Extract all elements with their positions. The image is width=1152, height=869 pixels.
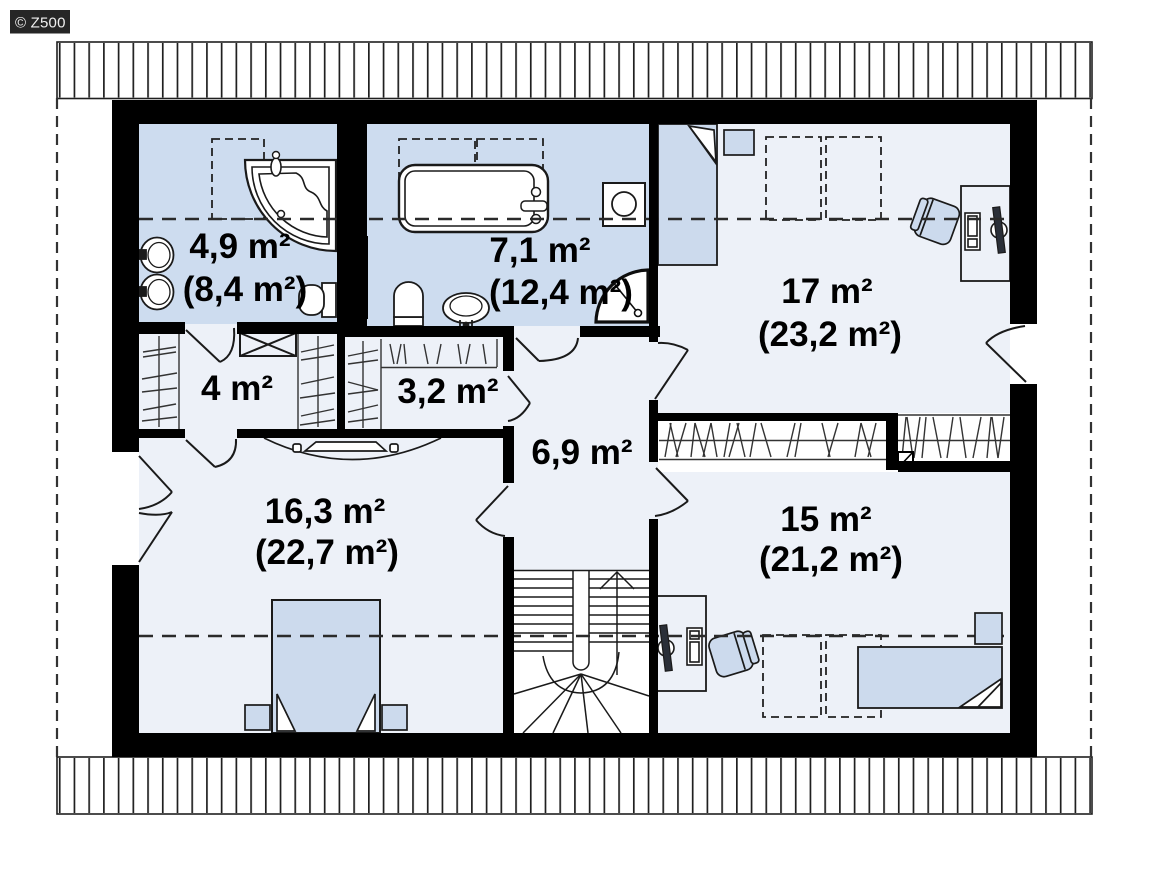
svg-text:6,9 m²: 6,9 m² [531,433,632,472]
svg-text:(8,4 m²): (8,4 m²) [183,270,307,309]
svg-text:(21,2 m²): (21,2 m²) [759,540,903,579]
svg-text:© Z500: © Z500 [15,15,66,32]
svg-text:(22,7 m²): (22,7 m²) [255,533,399,572]
svg-text:16,3 m²: 16,3 m² [265,492,386,531]
svg-text:7,1 m²: 7,1 m² [489,231,590,270]
svg-text:17 m²: 17 m² [781,272,872,311]
svg-text:(23,2 m²): (23,2 m²) [758,315,902,354]
svg-text:4,9 m²: 4,9 m² [189,227,290,266]
svg-text:4 m²: 4 m² [201,369,273,408]
svg-text:3,2 m²: 3,2 m² [397,372,498,411]
svg-text:15 m²: 15 m² [780,500,871,539]
svg-text:(12,4 m²): (12,4 m²) [489,273,633,312]
